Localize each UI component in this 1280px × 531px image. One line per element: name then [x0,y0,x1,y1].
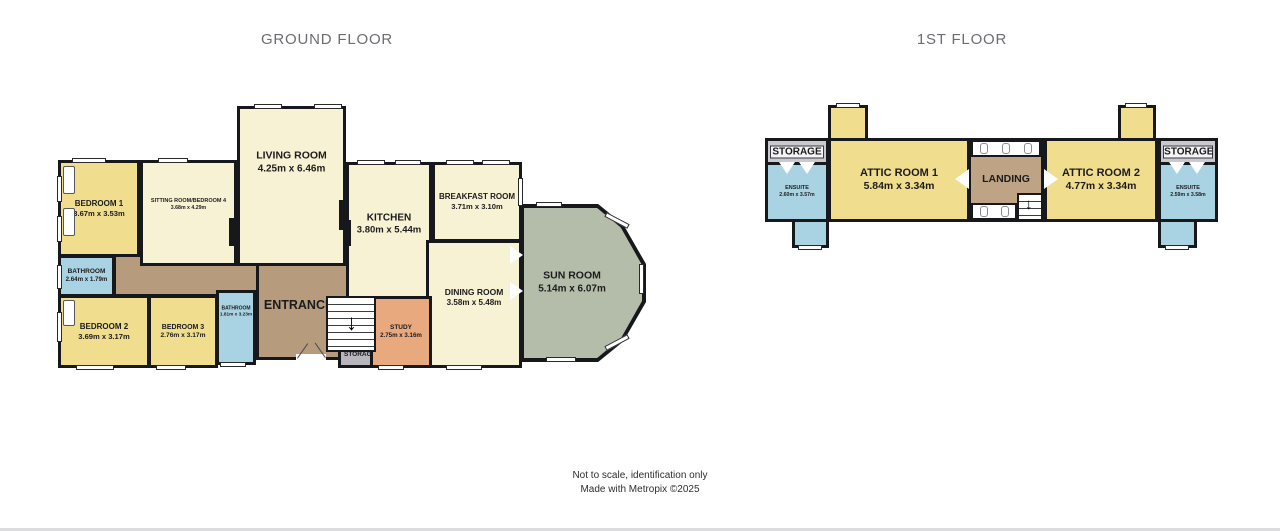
room-label: STUDY 2.75m x 3.16m [373,324,429,340]
door-chevron [1189,162,1205,174]
window [395,160,421,165]
window [314,104,342,109]
window [836,103,860,108]
room-dims: 5.84m x 3.34m [831,180,967,194]
door-chevron [779,162,795,174]
room-name: BATHROOM [219,306,253,313]
room-label: SITTING ROOM/BEDROOM 4 3.68m x 4.29m [143,198,234,212]
room-dims: 5.14m x 6.07m [520,283,624,296]
window [536,202,562,207]
room-name: DINING ROOM [429,287,519,298]
window [76,365,114,370]
room-name: STUDY [373,324,429,332]
window [72,158,106,163]
ground-floor-title: GROUND FLOOR [177,31,477,48]
room-storage-left: STORAGE [765,138,829,165]
window-pane [980,143,988,154]
stairs-down-arrow: ↓ [1025,197,1033,212]
window-pane [1024,143,1032,154]
room-label: SUN ROOM 5.14m x 6.07m [520,270,646,297]
room-label: STORAGE [770,145,823,158]
room-dims: 3.69m x 3.17m [61,332,147,342]
room-name: SUN ROOM [520,270,624,284]
room-name: LIVING ROOM [240,150,343,164]
room-label: BREAKFAST ROOM 3.71m x 3.10m [435,192,519,212]
door-chevron [510,282,523,300]
door-chevron [1044,169,1058,189]
room-dining-room: DINING ROOM 3.58m x 5.48m [426,240,522,368]
room-dims: 1.81m x 3.23m [219,312,253,318]
room-label: ENSUITE 2.59m x 3.58m [1161,185,1215,199]
room-label: DINING ROOM 3.58m x 5.48m [429,287,519,309]
landing-roof-window [971,140,1041,157]
room-study: STUDY 2.75m x 3.16m [370,296,432,368]
bed-icon [63,208,75,236]
room-label: LANDING [971,173,1041,187]
door-chevron [955,169,969,189]
room-name: ATTIC ROOM 2 [1047,166,1155,180]
front-door-opening [296,354,326,362]
window [1165,245,1189,250]
room-dims: 2.60m x 3.57m [768,192,826,199]
window [158,158,188,163]
room-dims: 2.59m x 3.58m [1161,192,1215,199]
room-dims: 4.77m x 3.34m [1047,180,1155,194]
room-dims: 4.25m x 6.46m [240,163,343,176]
window [57,312,62,342]
room-dims: 2.64m x 1.79m [61,276,112,284]
room-dims: 3.58m x 5.48m [429,298,519,309]
ensuite-left-extension [792,219,829,248]
room-bathroom-2: BATHROOM 1.81m x 3.23m [216,290,256,365]
room-kitchen: KITCHEN 3.80m x 5.44m [346,162,432,300]
room-dims: 3.68m x 4.29m [143,205,234,212]
room-ensuite-left: ENSUITE 2.60m x 3.57m [765,162,829,222]
room-name: BEDROOM 3 [151,323,215,332]
room-label: BEDROOM 3 2.76m x 3.17m [151,323,215,341]
chimney-breast [343,220,351,246]
room-dims: 3.80m x 5.44m [349,225,429,237]
room-label: ATTIC ROOM 2 4.77m x 3.34m [1047,166,1155,194]
window [378,365,404,370]
room-dims: 2.76m x 3.17m [151,332,215,341]
door-chevron [799,162,815,174]
window [446,160,474,165]
room-ensuite-right: ENSUITE 2.59m x 3.58m [1158,162,1218,222]
room-name: SITTING ROOM/BEDROOM 4 [143,198,234,205]
room-label: BATHROOM 2.64m x 1.79m [61,268,112,284]
room-dims: 2.75m x 3.16m [373,332,429,340]
room-storage-right: STORAGE [1158,138,1218,165]
room-name: ENSUITE [768,185,826,192]
room-name: BATHROOM [61,268,112,276]
window [798,245,822,250]
window-pane [980,206,988,217]
room-sitting-room-bedroom-4: SITTING ROOM/BEDROOM 4 3.68m x 4.29m [140,160,237,266]
chimney-breast [229,218,240,246]
disclaimer-line2: Made with Metropix ©2025 [0,483,1280,497]
bed-icon [63,300,75,326]
door-chevron [510,246,523,264]
room-label: ENSUITE 2.60m x 3.57m [768,185,826,199]
room-bedroom-3: BEDROOM 3 2.76m x 3.17m [148,295,218,368]
room-label: LIVING ROOM 4.25m x 6.46m [240,150,343,177]
window [518,178,523,206]
window [57,216,62,242]
room-name: KITCHEN [349,212,429,225]
window-pane [1001,206,1009,217]
room-name: ENSUITE [1161,185,1215,192]
first-floor-title: 1ST FLOOR [812,31,1112,48]
room-label: STORAGE [1163,145,1213,158]
room-name: LANDING [971,173,1041,187]
door-chevron [1169,162,1185,174]
first-floor-plan: STORAGE ENSUITE 2.60m x 3.57m ATTIC ROOM… [765,105,1218,250]
room-name: BREAKFAST ROOM [435,192,519,202]
room-attic-room-1: ATTIC ROOM 1 5.84m x 3.34m [828,138,970,222]
window [1125,103,1147,108]
window [546,357,576,362]
window [254,104,282,109]
room-attic-room-2: ATTIC ROOM 2 4.77m x 3.34m [1044,138,1158,222]
window [57,265,62,289]
window [220,362,246,367]
disclaimer: Not to scale, identification only Made w… [0,469,1280,497]
window [639,264,644,294]
window [156,365,186,370]
ground-floor-plan: SUN ROOM 5.14m x 6.07m ENTRANCE HALL BED… [58,100,648,372]
room-breakfast-room: BREAKFAST ROOM 3.71m x 3.10m [432,162,522,242]
window [357,160,385,165]
room-living-room: LIVING ROOM 4.25m x 6.46m [237,106,346,266]
room-name: ATTIC ROOM 1 [831,166,967,180]
ensuite-right-extension [1158,219,1197,248]
window [57,176,62,202]
disclaimer-line1: Not to scale, identification only [0,469,1280,483]
window-pane [1002,143,1010,154]
bed-icon [63,166,75,194]
room-label: ATTIC ROOM 1 5.84m x 3.34m [831,166,967,194]
window [482,160,510,165]
landing-roof-window [971,203,1017,220]
room-bathroom-1: BATHROOM 2.64m x 1.79m [58,255,115,297]
room-label: KITCHEN 3.80m x 5.44m [349,212,429,237]
room-label: BATHROOM 1.81m x 3.23m [219,306,253,319]
room-dims: 3.71m x 3.10m [435,202,519,212]
window [446,365,482,370]
stairs-down-arrow: ↓ [346,312,357,334]
